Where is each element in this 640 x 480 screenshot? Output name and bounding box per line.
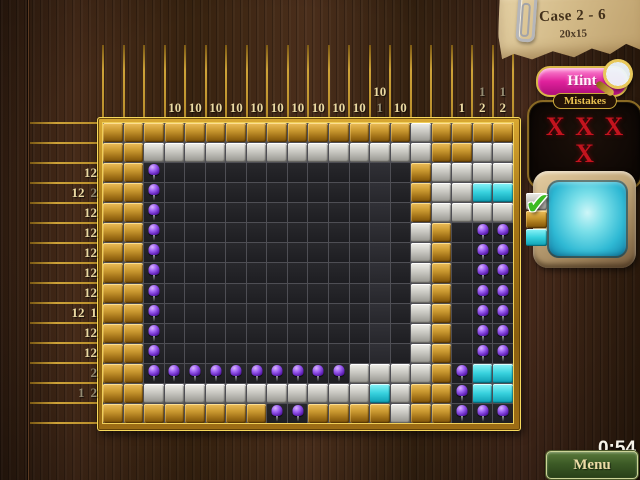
grid-cell[interactable] (226, 223, 246, 242)
grid-cell[interactable] (452, 364, 472, 383)
grid-cell[interactable] (206, 223, 226, 242)
grid-cell[interactable] (267, 263, 287, 282)
grid-cell[interactable] (432, 364, 452, 383)
grid-cell[interactable] (144, 263, 164, 282)
grid-cell[interactable] (247, 404, 267, 423)
grid-cell[interactable] (432, 344, 452, 363)
grid-cell[interactable] (473, 223, 493, 242)
grid-cell[interactable] (329, 243, 349, 262)
grid-cell[interactable] (350, 304, 370, 323)
grid-cell[interactable] (206, 263, 226, 282)
grid-cell[interactable] (103, 304, 123, 323)
grid-cell[interactable] (267, 123, 287, 142)
grid-cell[interactable] (432, 143, 452, 162)
grid-cell[interactable] (144, 123, 164, 142)
grid-cell[interactable] (165, 203, 185, 222)
grid-cell[interactable] (247, 223, 267, 242)
grid-cell[interactable] (144, 143, 164, 162)
grid-cell[interactable] (247, 324, 267, 343)
grid-cell[interactable] (185, 263, 205, 282)
grid-cell[interactable] (452, 163, 472, 182)
grid-cell[interactable] (452, 324, 472, 343)
grid-cell[interactable] (411, 364, 431, 383)
grid-cell[interactable] (411, 384, 431, 403)
grid-cell[interactable] (267, 304, 287, 323)
grid-cell[interactable] (308, 284, 328, 303)
grid-cell[interactable] (308, 384, 328, 403)
grid-cell[interactable] (411, 344, 431, 363)
grid-cell[interactable] (165, 304, 185, 323)
grid-cell[interactable] (103, 203, 123, 222)
grid-cell[interactable] (185, 284, 205, 303)
grid-cell[interactable] (308, 223, 328, 242)
grid-cell[interactable] (185, 243, 205, 262)
grid-cell[interactable] (185, 203, 205, 222)
grid-cell[interactable] (226, 364, 246, 383)
grid-cell[interactable] (206, 324, 226, 343)
grid-cell[interactable] (226, 263, 246, 282)
grid-cell[interactable] (165, 284, 185, 303)
grid-cell[interactable] (391, 324, 411, 343)
grid-cell[interactable] (493, 284, 513, 303)
grid-cell[interactable] (165, 344, 185, 363)
grid-cell[interactable] (493, 243, 513, 262)
grid-cell[interactable] (165, 364, 185, 383)
grid-cell[interactable] (308, 324, 328, 343)
grid-cell[interactable] (432, 203, 452, 222)
grid-cell[interactable] (493, 183, 513, 202)
grid-cell[interactable] (308, 183, 328, 202)
grid-cell[interactable] (432, 324, 452, 343)
grid-cell[interactable] (350, 123, 370, 142)
grid-cell[interactable] (206, 284, 226, 303)
grid-cell[interactable] (493, 143, 513, 162)
grid-cell[interactable] (165, 324, 185, 343)
grid-cell[interactable] (144, 364, 164, 383)
grid-cell[interactable] (411, 404, 431, 423)
grid-cell[interactable] (144, 203, 164, 222)
grid-cell[interactable] (473, 284, 493, 303)
grid-cell[interactable] (267, 143, 287, 162)
grid-cell[interactable] (329, 344, 349, 363)
grid-cell[interactable] (124, 404, 144, 423)
grid-cell[interactable] (329, 324, 349, 343)
grid-cell[interactable] (247, 384, 267, 403)
grid-cell[interactable] (432, 163, 452, 182)
grid-cell[interactable] (452, 203, 472, 222)
grid-cell[interactable] (124, 243, 144, 262)
grid-cell[interactable] (432, 304, 452, 323)
grid-cell[interactable] (267, 284, 287, 303)
grid-cell[interactable] (370, 384, 390, 403)
grid-cell[interactable] (185, 223, 205, 242)
grid-cell[interactable] (493, 384, 513, 403)
grid-cell[interactable] (452, 304, 472, 323)
grid-cell[interactable] (185, 344, 205, 363)
grid-cell[interactable] (288, 263, 308, 282)
grid-cell[interactable] (473, 183, 493, 202)
grid-cell[interactable] (473, 243, 493, 262)
grid-cell[interactable] (247, 284, 267, 303)
grid-cell[interactable] (370, 203, 390, 222)
grid-cell[interactable] (370, 364, 390, 383)
grid-cell[interactable] (329, 263, 349, 282)
grid-cell[interactable] (432, 183, 452, 202)
grid-cell[interactable] (452, 344, 472, 363)
grid-cell[interactable] (165, 384, 185, 403)
grid-cell[interactable] (473, 364, 493, 383)
grid-cell[interactable] (391, 344, 411, 363)
grid-cell[interactable] (124, 203, 144, 222)
grid-cell[interactable] (288, 324, 308, 343)
grid-cell[interactable] (411, 203, 431, 222)
menu-button[interactable]: Menu (546, 451, 638, 479)
grid-cell[interactable] (226, 284, 246, 303)
grid-cell[interactable] (226, 324, 246, 343)
grid-cell[interactable] (350, 223, 370, 242)
grid-cell[interactable] (432, 384, 452, 403)
grid-cell[interactable] (288, 344, 308, 363)
grid-cell[interactable] (432, 404, 452, 423)
grid-cell[interactable] (391, 123, 411, 142)
grid-cell[interactable] (493, 324, 513, 343)
grid-cell[interactable] (206, 404, 226, 423)
grid-cell[interactable] (391, 203, 411, 222)
grid-cell[interactable] (411, 304, 431, 323)
grid-cell[interactable] (493, 163, 513, 182)
grid-cell[interactable] (185, 364, 205, 383)
grid-cell[interactable] (124, 143, 144, 162)
grid-cell[interactable] (452, 243, 472, 262)
grid-cell[interactable] (391, 263, 411, 282)
grid-cell[interactable] (411, 223, 431, 242)
grid-cell[interactable] (103, 404, 123, 423)
grid-cell[interactable] (288, 243, 308, 262)
grid-cell[interactable] (144, 223, 164, 242)
grid-cell[interactable] (288, 203, 308, 222)
grid-cell[interactable] (103, 364, 123, 383)
grid-cell[interactable] (103, 384, 123, 403)
grid-cell[interactable] (370, 404, 390, 423)
grid-cell[interactable] (370, 163, 390, 182)
grid-cell[interactable] (206, 123, 226, 142)
grid-cell[interactable] (267, 223, 287, 242)
grid-cell[interactable] (144, 183, 164, 202)
grid-cell[interactable] (370, 324, 390, 343)
grid-cell[interactable] (473, 304, 493, 323)
grid-cell[interactable] (247, 163, 267, 182)
grid-cell[interactable] (308, 143, 328, 162)
grid-cell[interactable] (165, 263, 185, 282)
grid-cell[interactable] (350, 284, 370, 303)
grid-cell[interactable] (124, 223, 144, 242)
grid-cell[interactable] (350, 263, 370, 282)
grid-cell[interactable] (124, 163, 144, 182)
grid-cell[interactable] (206, 163, 226, 182)
grid-cell[interactable] (288, 384, 308, 403)
grid-cell[interactable] (206, 183, 226, 202)
grid-cell[interactable] (103, 284, 123, 303)
grid-cell[interactable] (473, 123, 493, 142)
grid-cell[interactable] (308, 243, 328, 262)
grid-cell[interactable] (185, 384, 205, 403)
grid-cell[interactable] (165, 183, 185, 202)
grid-cell[interactable] (144, 163, 164, 182)
grid-cell[interactable] (370, 284, 390, 303)
grid-cell[interactable] (165, 163, 185, 182)
grid-cell[interactable] (124, 364, 144, 383)
grid-cell[interactable] (473, 344, 493, 363)
grid-cell[interactable] (103, 123, 123, 142)
grid-cell[interactable] (308, 263, 328, 282)
grid-cell[interactable] (267, 364, 287, 383)
grid-cell[interactable] (288, 364, 308, 383)
grid-cell[interactable] (226, 404, 246, 423)
grid-cell[interactable] (329, 404, 349, 423)
grid-cell[interactable] (350, 203, 370, 222)
grid-cell[interactable] (493, 223, 513, 242)
grid-cell[interactable] (288, 183, 308, 202)
grid-cell[interactable] (432, 263, 452, 282)
grid-cell[interactable] (452, 143, 472, 162)
grid-cell[interactable] (288, 163, 308, 182)
grid-cell[interactable] (432, 284, 452, 303)
grid-cell[interactable] (391, 364, 411, 383)
grid-cell[interactable] (493, 203, 513, 222)
grid-cell[interactable] (370, 183, 390, 202)
grid-cell[interactable] (350, 143, 370, 162)
grid-cell[interactable] (124, 324, 144, 343)
grid-cell[interactable] (206, 203, 226, 222)
grid-cell[interactable] (144, 344, 164, 363)
grid-cell[interactable] (185, 143, 205, 162)
grid-cell[interactable] (432, 223, 452, 242)
grid-cell[interactable] (144, 404, 164, 423)
grid-cell[interactable] (267, 324, 287, 343)
grid-cell[interactable] (350, 324, 370, 343)
grid-cell[interactable] (226, 304, 246, 323)
grid-cell[interactable] (165, 243, 185, 262)
grid-cell[interactable] (370, 263, 390, 282)
grid-cell[interactable] (103, 324, 123, 343)
grid-cell[interactable] (165, 404, 185, 423)
grid-cell[interactable] (124, 344, 144, 363)
grid-cell[interactable] (493, 344, 513, 363)
grid-cell[interactable] (267, 243, 287, 262)
grid-cell[interactable] (226, 203, 246, 222)
grid-cell[interactable] (493, 404, 513, 423)
grid-cell[interactable] (452, 223, 472, 242)
grid-cell[interactable] (165, 123, 185, 142)
grid-cell[interactable] (288, 284, 308, 303)
grid-cell[interactable] (185, 163, 205, 182)
grid-cell[interactable] (165, 223, 185, 242)
grid-cell[interactable] (473, 404, 493, 423)
grid-cell[interactable] (411, 243, 431, 262)
grid-cell[interactable] (391, 243, 411, 262)
grid-cell[interactable] (308, 304, 328, 323)
grid-cell[interactable] (144, 243, 164, 262)
grid-cell[interactable] (288, 223, 308, 242)
grid-cell[interactable] (124, 123, 144, 142)
grid-cell[interactable] (206, 344, 226, 363)
grid-cell[interactable] (247, 304, 267, 323)
grid-cell[interactable] (329, 284, 349, 303)
grid-cell[interactable] (165, 143, 185, 162)
grid-cell[interactable] (329, 364, 349, 383)
grid-cell[interactable] (226, 163, 246, 182)
grid-cell[interactable] (411, 123, 431, 142)
grid-cell[interactable] (350, 404, 370, 423)
grid-cell[interactable] (370, 223, 390, 242)
grid-cell[interactable] (329, 123, 349, 142)
grid-cell[interactable] (391, 143, 411, 162)
grid-cell[interactable] (473, 203, 493, 222)
grid-cell[interactable] (350, 364, 370, 383)
grid-cell[interactable] (124, 304, 144, 323)
grid-cell[interactable] (411, 183, 431, 202)
grid-cell[interactable] (103, 163, 123, 182)
grid-cell[interactable] (206, 364, 226, 383)
palette-cyan-tile[interactable] (526, 229, 547, 246)
grid-cell[interactable] (452, 123, 472, 142)
grid-cell[interactable] (144, 284, 164, 303)
grid-cell[interactable] (144, 304, 164, 323)
grid-cell[interactable] (350, 183, 370, 202)
grid-cell[interactable] (350, 243, 370, 262)
grid-cell[interactable] (473, 324, 493, 343)
grid-cell[interactable] (226, 243, 246, 262)
grid-cell[interactable] (267, 404, 287, 423)
grid-cell[interactable] (452, 183, 472, 202)
grid-cell[interactable] (288, 404, 308, 423)
grid-cell[interactable] (206, 384, 226, 403)
grid-cell[interactable] (103, 143, 123, 162)
grid-cell[interactable] (452, 284, 472, 303)
grid-cell[interactable] (206, 143, 226, 162)
grid-cell[interactable] (267, 183, 287, 202)
grid-cell[interactable] (226, 143, 246, 162)
grid-cell[interactable] (350, 384, 370, 403)
grid-cell[interactable] (308, 163, 328, 182)
grid-cell[interactable] (411, 143, 431, 162)
grid-cell[interactable] (370, 123, 390, 142)
grid-cell[interactable] (124, 384, 144, 403)
grid-cell[interactable] (370, 243, 390, 262)
grid-cell[interactable] (391, 284, 411, 303)
grid-cell[interactable] (267, 163, 287, 182)
grid-cell[interactable] (391, 404, 411, 423)
grid-cell[interactable] (247, 263, 267, 282)
grid-cell[interactable] (350, 163, 370, 182)
grid-cell[interactable] (329, 203, 349, 222)
grid-cell[interactable] (144, 384, 164, 403)
grid-cell[interactable] (103, 223, 123, 242)
grid-cell[interactable] (185, 304, 205, 323)
grid-cell[interactable] (206, 243, 226, 262)
grid-cell[interactable] (267, 203, 287, 222)
grid-cell[interactable] (308, 203, 328, 222)
grid-cell[interactable] (411, 284, 431, 303)
grid-cell[interactable] (411, 163, 431, 182)
grid-cell[interactable] (493, 364, 513, 383)
grid-cell[interactable] (144, 324, 164, 343)
grid-cell[interactable] (185, 123, 205, 142)
grid-cell[interactable] (124, 263, 144, 282)
grid-cell[interactable] (391, 384, 411, 403)
grid-cell[interactable] (247, 364, 267, 383)
grid-cell[interactable] (247, 243, 267, 262)
grid-cell[interactable] (247, 344, 267, 363)
grid-cell[interactable] (329, 304, 349, 323)
grid-cell[interactable] (473, 384, 493, 403)
grid-cell[interactable] (124, 284, 144, 303)
grid-cell[interactable] (432, 243, 452, 262)
grid-cell[interactable] (493, 123, 513, 142)
grid-cell[interactable] (226, 344, 246, 363)
grid-cell[interactable] (103, 183, 123, 202)
grid-cell[interactable] (185, 183, 205, 202)
grid-cell[interactable] (411, 263, 431, 282)
grid-cell[interactable] (493, 304, 513, 323)
grid-cell[interactable] (185, 404, 205, 423)
grid-cell[interactable] (226, 183, 246, 202)
grid-cell[interactable] (370, 304, 390, 323)
grid-cell[interactable] (247, 183, 267, 202)
grid-cell[interactable] (391, 163, 411, 182)
grid-cell[interactable] (308, 364, 328, 383)
grid-cell[interactable] (103, 243, 123, 262)
grid-cell[interactable] (206, 304, 226, 323)
grid-cell[interactable] (288, 304, 308, 323)
grid-cell[interactable] (308, 123, 328, 142)
grid-cell[interactable] (288, 143, 308, 162)
grid-cell[interactable] (329, 163, 349, 182)
grid-cell[interactable] (226, 384, 246, 403)
grid-cell[interactable] (411, 324, 431, 343)
grid-cell[interactable] (103, 263, 123, 282)
grid-cell[interactable] (452, 384, 472, 403)
grid-cell[interactable] (247, 143, 267, 162)
grid-cell[interactable] (473, 263, 493, 282)
grid-cell[interactable] (247, 203, 267, 222)
grid-cell[interactable] (452, 404, 472, 423)
grid-cell[interactable] (391, 223, 411, 242)
grid-cell[interactable] (308, 344, 328, 363)
grid-cell[interactable] (185, 324, 205, 343)
grid-cell[interactable] (473, 143, 493, 162)
grid-cell[interactable] (452, 263, 472, 282)
grid-cell[interactable] (267, 344, 287, 363)
grid-cell[interactable] (370, 344, 390, 363)
grid-cell[interactable] (247, 123, 267, 142)
grid-cell[interactable] (288, 123, 308, 142)
grid-cell[interactable] (329, 183, 349, 202)
grid-cell[interactable] (329, 223, 349, 242)
grid-cell[interactable] (103, 344, 123, 363)
grid-cell[interactable] (391, 304, 411, 323)
grid-cell[interactable] (329, 384, 349, 403)
grid-cell[interactable] (267, 384, 287, 403)
grid-cell[interactable] (473, 163, 493, 182)
grid-cell[interactable] (329, 143, 349, 162)
grid-cell[interactable] (391, 183, 411, 202)
grid-cell[interactable] (226, 123, 246, 142)
grid-cell[interactable] (493, 263, 513, 282)
grid-cell[interactable] (350, 344, 370, 363)
grid-cell[interactable] (308, 404, 328, 423)
grid-cell[interactable] (432, 123, 452, 142)
